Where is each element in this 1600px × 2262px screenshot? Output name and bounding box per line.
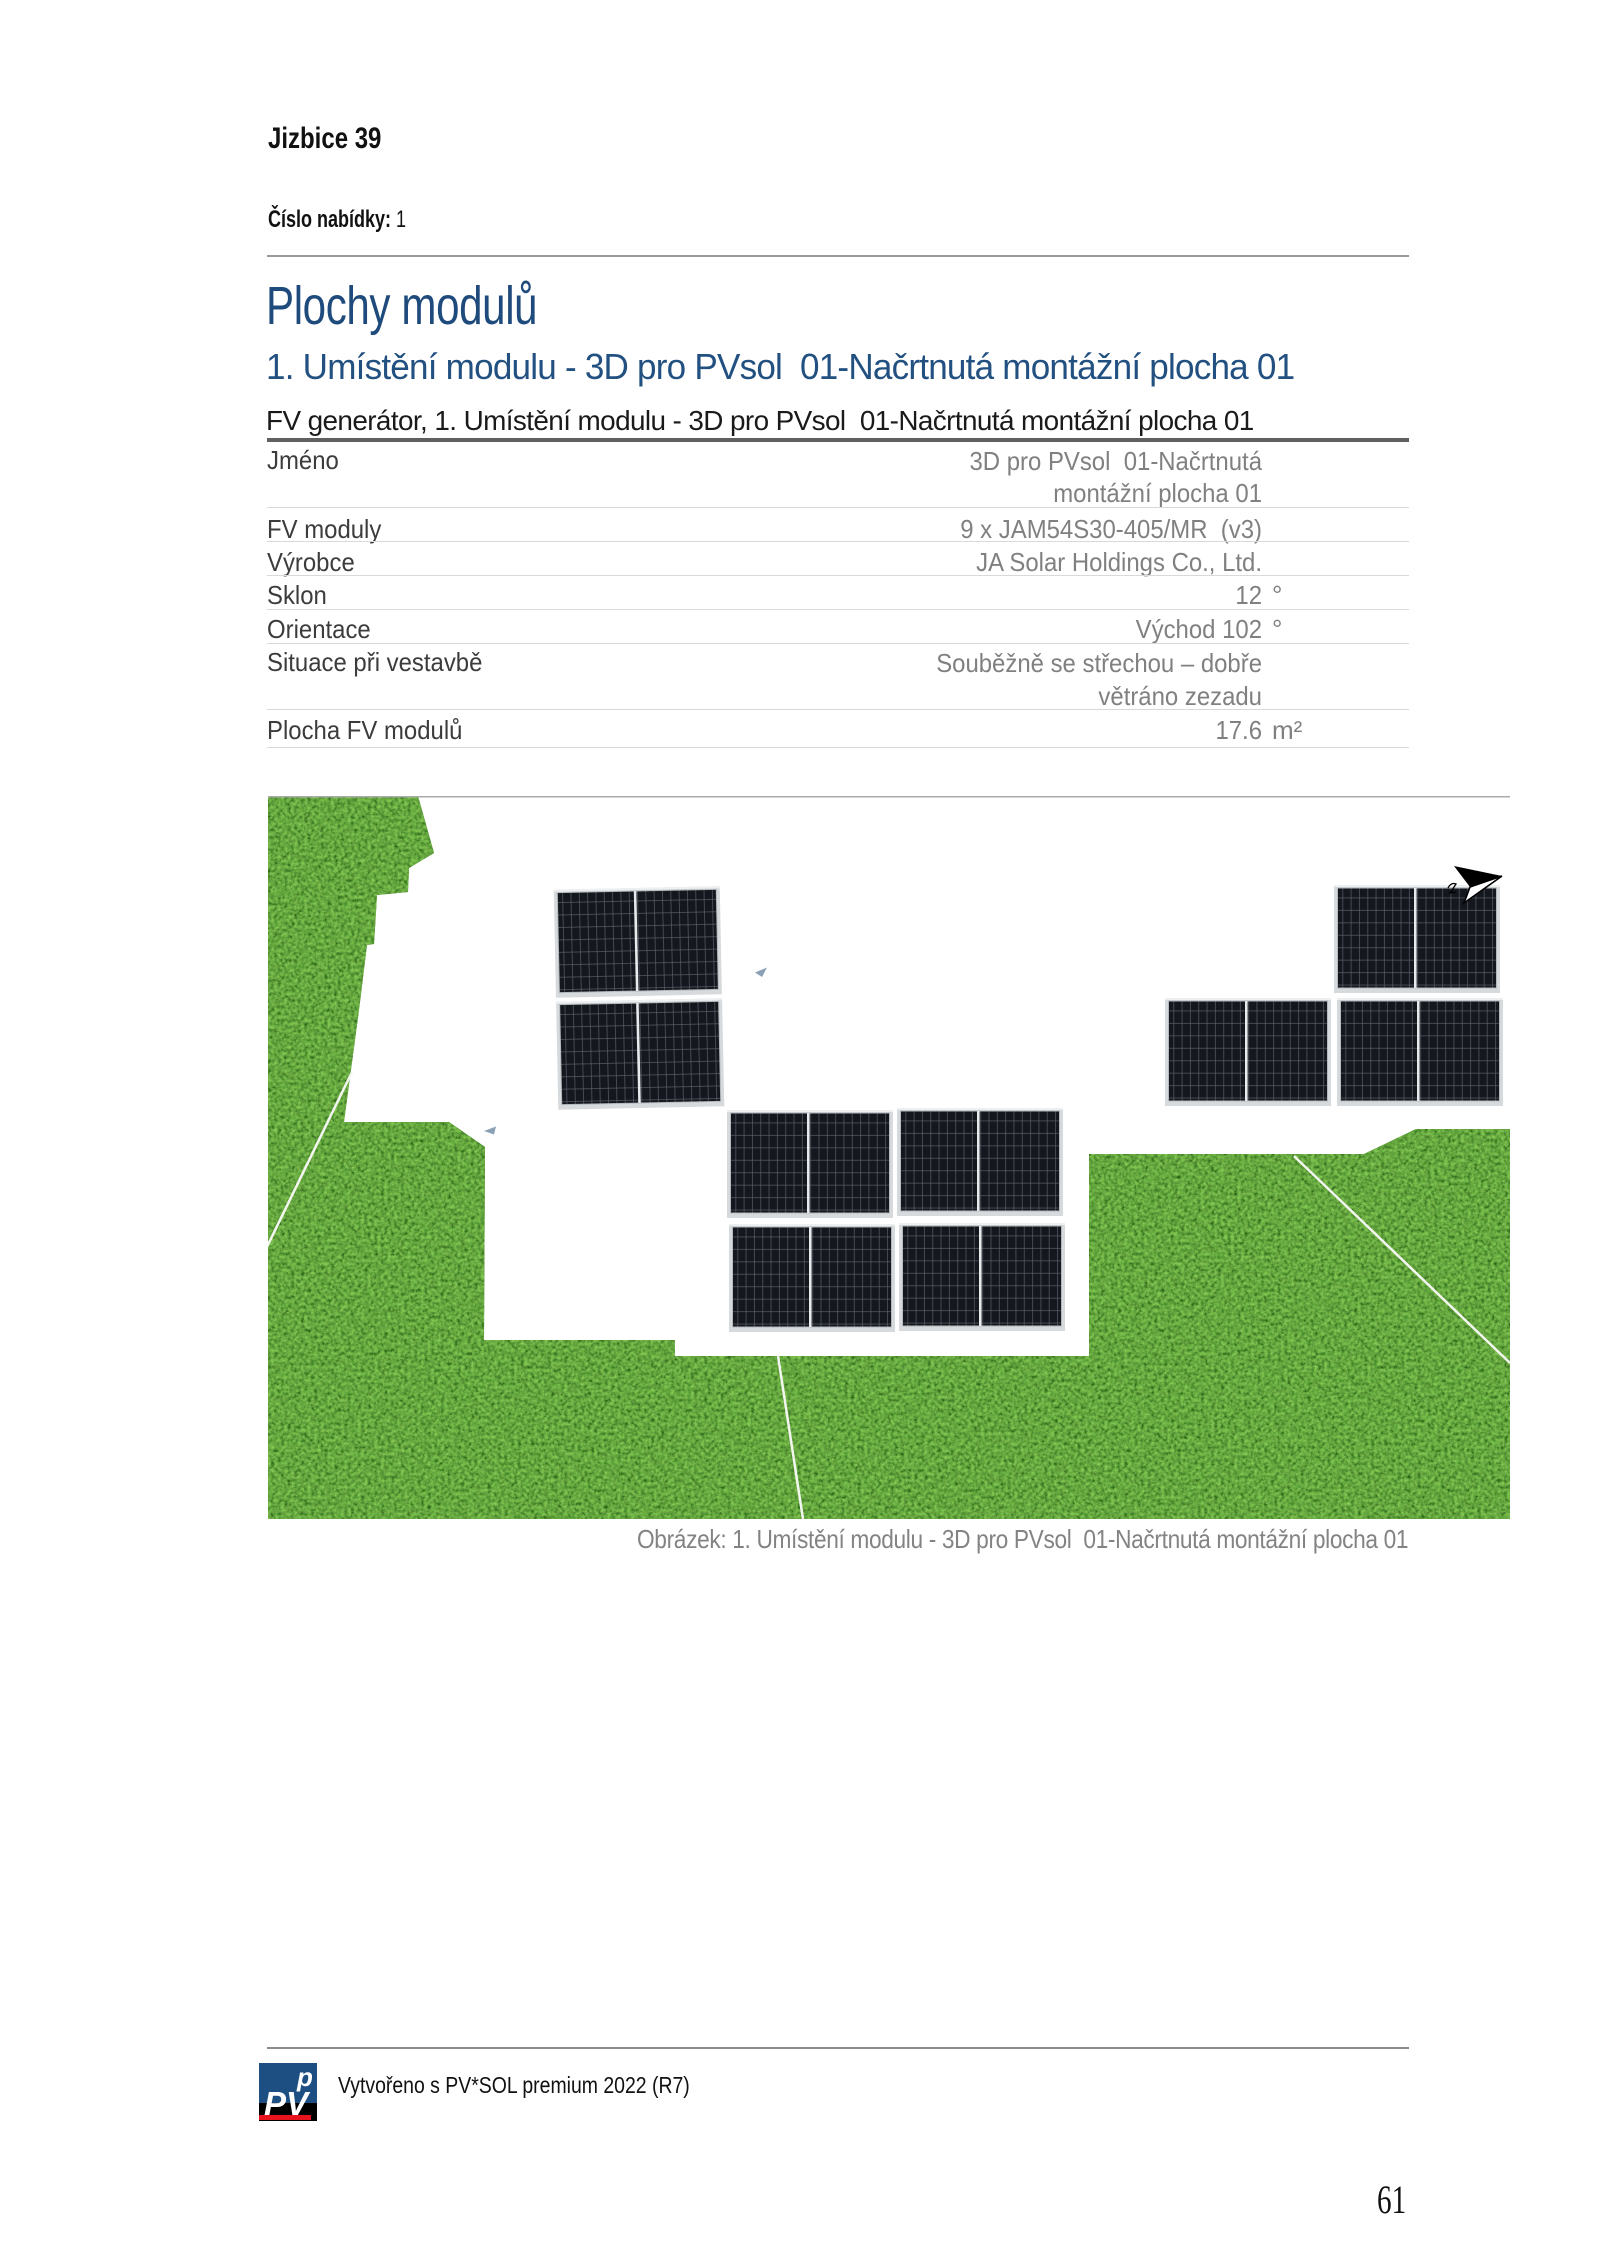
svg-text:p: p: [296, 2063, 313, 2092]
